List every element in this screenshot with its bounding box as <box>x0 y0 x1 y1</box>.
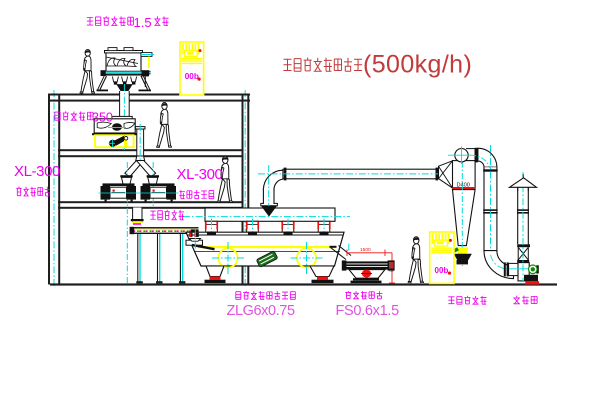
svg-text:(500kg/h): (500kg/h) <box>363 51 472 79</box>
svg-text:350: 350 <box>92 111 113 125</box>
svg-text:1500: 1500 <box>360 247 371 253</box>
svg-text:00b: 00b <box>435 266 449 275</box>
svg-text:FS0.6x1.5: FS0.6x1.5 <box>336 303 400 319</box>
svg-text:1.5: 1.5 <box>134 15 152 30</box>
svg-text:XL-300: XL-300 <box>14 163 60 180</box>
svg-text:ZLG6x0.75: ZLG6x0.75 <box>227 303 295 319</box>
svg-text:00b: 00b <box>185 72 199 81</box>
svg-text:XL-300: XL-300 <box>177 166 223 183</box>
